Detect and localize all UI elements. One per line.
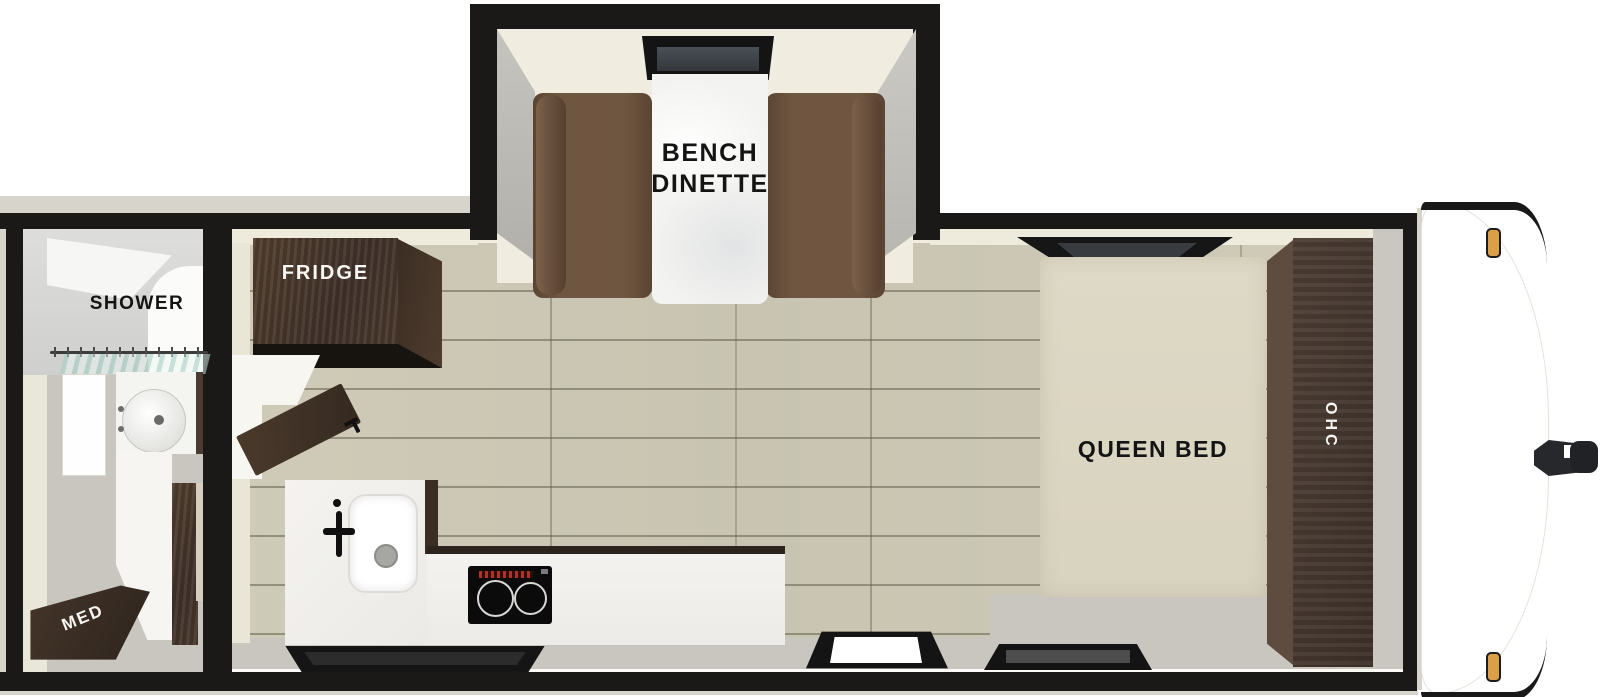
dinette-label-line2: DINETTE [592, 169, 828, 200]
exterior-top-band [0, 196, 472, 214]
bedroom-right-wall-face [1373, 229, 1403, 672]
dinette-window-glass [657, 47, 759, 71]
bath-shelf-strip [196, 483, 203, 601]
toilet-hinge-dot-top [118, 406, 124, 412]
toilet-cabinet-edge [196, 372, 203, 454]
cooktop-burner-right-icon [514, 582, 547, 615]
ohc-cabinet [1293, 238, 1373, 667]
slideout-left-wall [470, 4, 497, 240]
bathroom-divider-wall [203, 213, 232, 691]
slideout-right-wall [913, 4, 940, 240]
sink-drain-icon [374, 544, 398, 568]
exterior-bottom-band [0, 691, 1418, 695]
front-cap-trim-bottom [1421, 572, 1547, 697]
slideout-top-wall [470, 4, 940, 29]
cooktop-burner-left-icon [477, 580, 514, 617]
ohc-cabinet-label: OHC [1321, 402, 1339, 450]
fridge-label: FRIDGE [253, 262, 398, 285]
bath-tall-cabinet [172, 483, 198, 645]
queen-bed-label: QUEEN BED [1040, 436, 1266, 463]
shower-curtain [60, 354, 211, 374]
right-wall [1403, 213, 1417, 691]
bathroom-door [62, 374, 106, 476]
front-cap-trim-top [1421, 202, 1547, 330]
toilet-hinge-dot-bottom [118, 426, 124, 432]
toilet-flush-button [154, 415, 164, 425]
queen-bed [1040, 257, 1266, 597]
dinette-label: BENCH DINETTE [592, 138, 828, 200]
entry-door-opening [830, 637, 922, 663]
ohc-cabinet-side-face [1267, 240, 1293, 665]
hitch-coupler [1570, 441, 1598, 473]
fridge [253, 238, 398, 344]
faucet-sprayer-icon [333, 499, 341, 507]
bedroom-window-top-glass [1057, 243, 1197, 257]
kitchen-window-glass [302, 652, 528, 665]
faucet-handle-icon [323, 528, 355, 535]
cooktop-logo-mark [541, 569, 548, 574]
dinette-label-line1: BENCH [592, 138, 828, 169]
clearance-light-bottom [1486, 652, 1501, 682]
floorplan-canvas: SHOWER MED BENCH DINETTE FRIDGE [0, 0, 1600, 697]
kitchen-counter-edge-brown [425, 480, 438, 554]
shower-label: SHOWER [52, 293, 222, 315]
dinette-bench-right-bolster [852, 95, 882, 295]
dinette-bench-left-bolster [536, 95, 566, 295]
clearance-light-top [1486, 228, 1501, 258]
cooktop-control-strip [479, 571, 533, 578]
bedroom-window-bottom-glass [1006, 650, 1130, 663]
left-wall [6, 213, 23, 691]
